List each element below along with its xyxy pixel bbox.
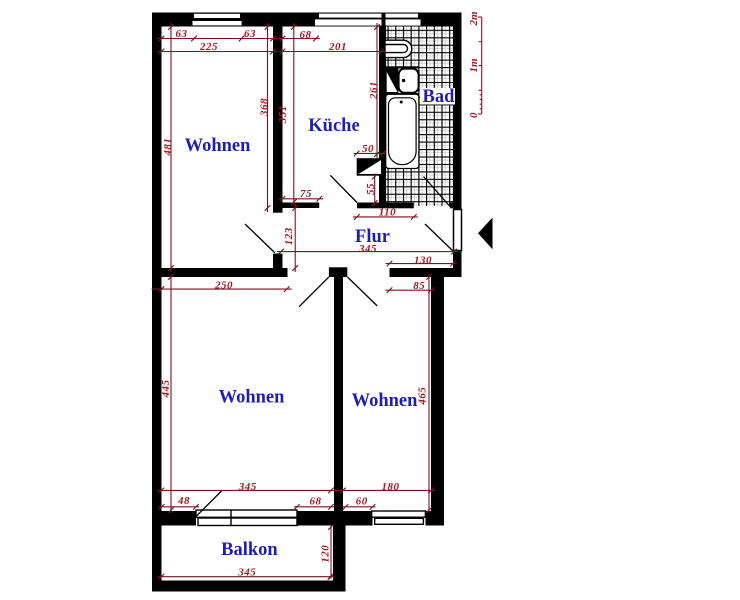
svg-text:250: 250 <box>214 280 233 292</box>
svg-text:123: 123 <box>283 227 295 245</box>
svg-text:Bad: Bad <box>423 87 456 107</box>
svg-text:63: 63 <box>244 28 256 40</box>
svg-text:50: 50 <box>362 143 374 155</box>
svg-text:Wohnen: Wohnen <box>185 136 252 156</box>
svg-text:Wohnen: Wohnen <box>352 391 419 411</box>
svg-text:48: 48 <box>177 495 190 507</box>
svg-text:68: 68 <box>310 496 322 508</box>
svg-text:2m: 2m <box>468 11 480 27</box>
svg-text:1m: 1m <box>468 58 480 73</box>
svg-text:225: 225 <box>199 41 218 53</box>
svg-text:261: 261 <box>368 81 380 100</box>
svg-text:55: 55 <box>365 183 377 195</box>
svg-text:345: 345 <box>238 481 257 493</box>
svg-text:201: 201 <box>328 41 347 53</box>
svg-text:68: 68 <box>300 29 312 41</box>
svg-text:Küche: Küche <box>308 116 359 136</box>
svg-text:481: 481 <box>162 138 174 157</box>
svg-text:Wohnen: Wohnen <box>219 388 286 408</box>
svg-text:465: 465 <box>417 387 429 406</box>
svg-text:85: 85 <box>413 280 425 292</box>
svg-text:60: 60 <box>356 496 368 508</box>
svg-text:63: 63 <box>176 28 188 40</box>
svg-text:351: 351 <box>277 105 289 124</box>
svg-text:368: 368 <box>259 98 271 117</box>
svg-text:345: 345 <box>237 567 256 579</box>
svg-text:445: 445 <box>160 380 172 399</box>
svg-text:75: 75 <box>300 188 312 200</box>
svg-text:180: 180 <box>382 481 400 493</box>
svg-text:130: 130 <box>414 255 432 267</box>
svg-text:Balkon: Balkon <box>221 540 278 560</box>
svg-text:110: 110 <box>379 207 396 219</box>
svg-text:0: 0 <box>468 112 480 118</box>
svg-text:345: 345 <box>358 243 377 255</box>
svg-text:120: 120 <box>320 545 332 563</box>
